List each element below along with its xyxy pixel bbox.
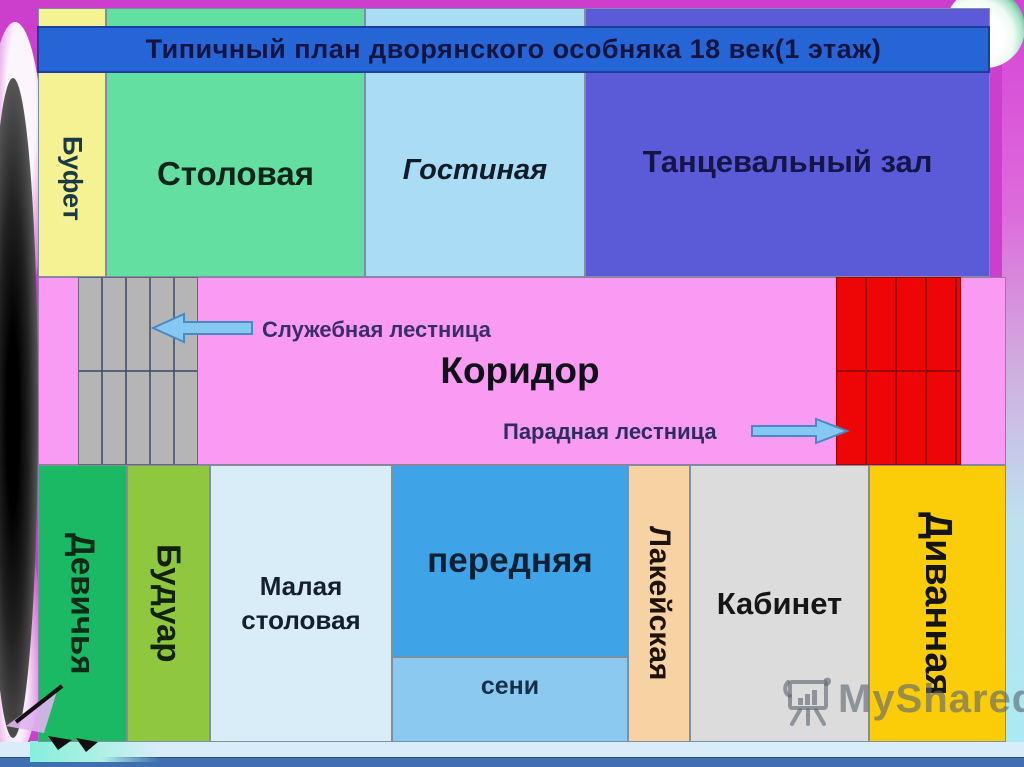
room-lakeyskaya: Лакейская [628, 465, 690, 742]
slide-canvas: Буфет Столовая Гостиная Танцевальный зал… [0, 0, 1024, 767]
presentation-easel-icon [782, 672, 832, 726]
koridor-label: Коридор [380, 350, 660, 392]
service-stairs-arrow-icon [150, 311, 254, 345]
grand-stairs-label: Парадная лестница [503, 419, 717, 445]
hand-drawn-arrow [0, 678, 170, 766]
watermark-text: MyShared [838, 677, 1024, 722]
room-malaya-stolovaya-label: Малая столовая [226, 570, 376, 638]
slide-title: Типичный план дворянского особняка 18 ве… [37, 26, 990, 73]
room-perednyaya: передняя [392, 465, 628, 657]
watermark: MyShared [782, 672, 1024, 726]
service-stairs-label: Служебная лестница [262, 317, 491, 343]
grand-stairs [836, 277, 961, 465]
room-malaya-stolovaya: Малая столовая [210, 465, 392, 742]
grand-stairs-arrow-icon [750, 416, 850, 446]
service-stairs [78, 277, 198, 465]
room-seni: сени [392, 657, 628, 742]
